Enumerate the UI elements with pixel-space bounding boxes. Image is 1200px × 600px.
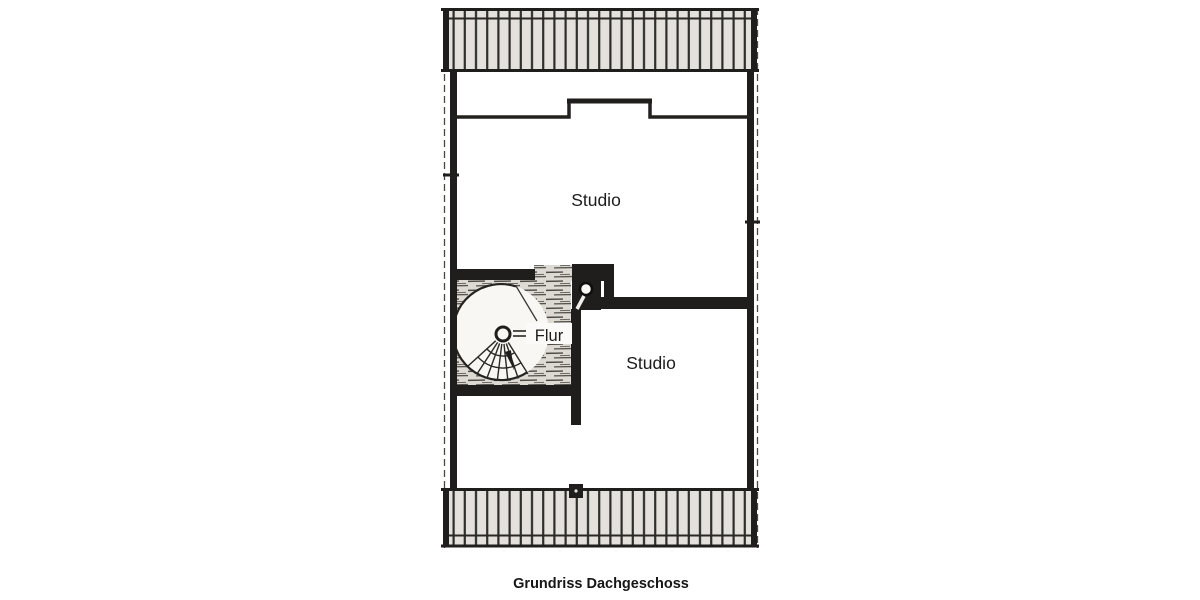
stair-newel-post [496, 327, 510, 341]
plan-caption: Grundriss Dachgeschoss [513, 576, 689, 592]
room-label-studio-upper: Studio [571, 190, 621, 210]
wall-flur-right [571, 309, 581, 425]
roof-overhang-hatch-bottom [441, 484, 759, 546]
dormer-wall [452, 101, 753, 117]
door-pivot-circle [580, 283, 592, 295]
wall-studio-divider [596, 297, 753, 309]
scanned-floorplan-page: Studio Flur Studio Grundriss Dachgeschos… [0, 0, 1200, 600]
hatch-band-lines [443, 488, 757, 546]
room-label-flur: Flur [535, 327, 564, 345]
room-label-studio-lower: Studio [626, 353, 676, 373]
post-marker-dot [574, 489, 577, 492]
wall-flur-bottom [450, 385, 576, 396]
floorplan-drawing: Studio Flur Studio Grundriss Dachgeschos… [0, 0, 1200, 600]
wall-right [747, 70, 754, 490]
wall-flur-top [450, 269, 535, 280]
roof-overhang-hatch-top [441, 8, 759, 72]
